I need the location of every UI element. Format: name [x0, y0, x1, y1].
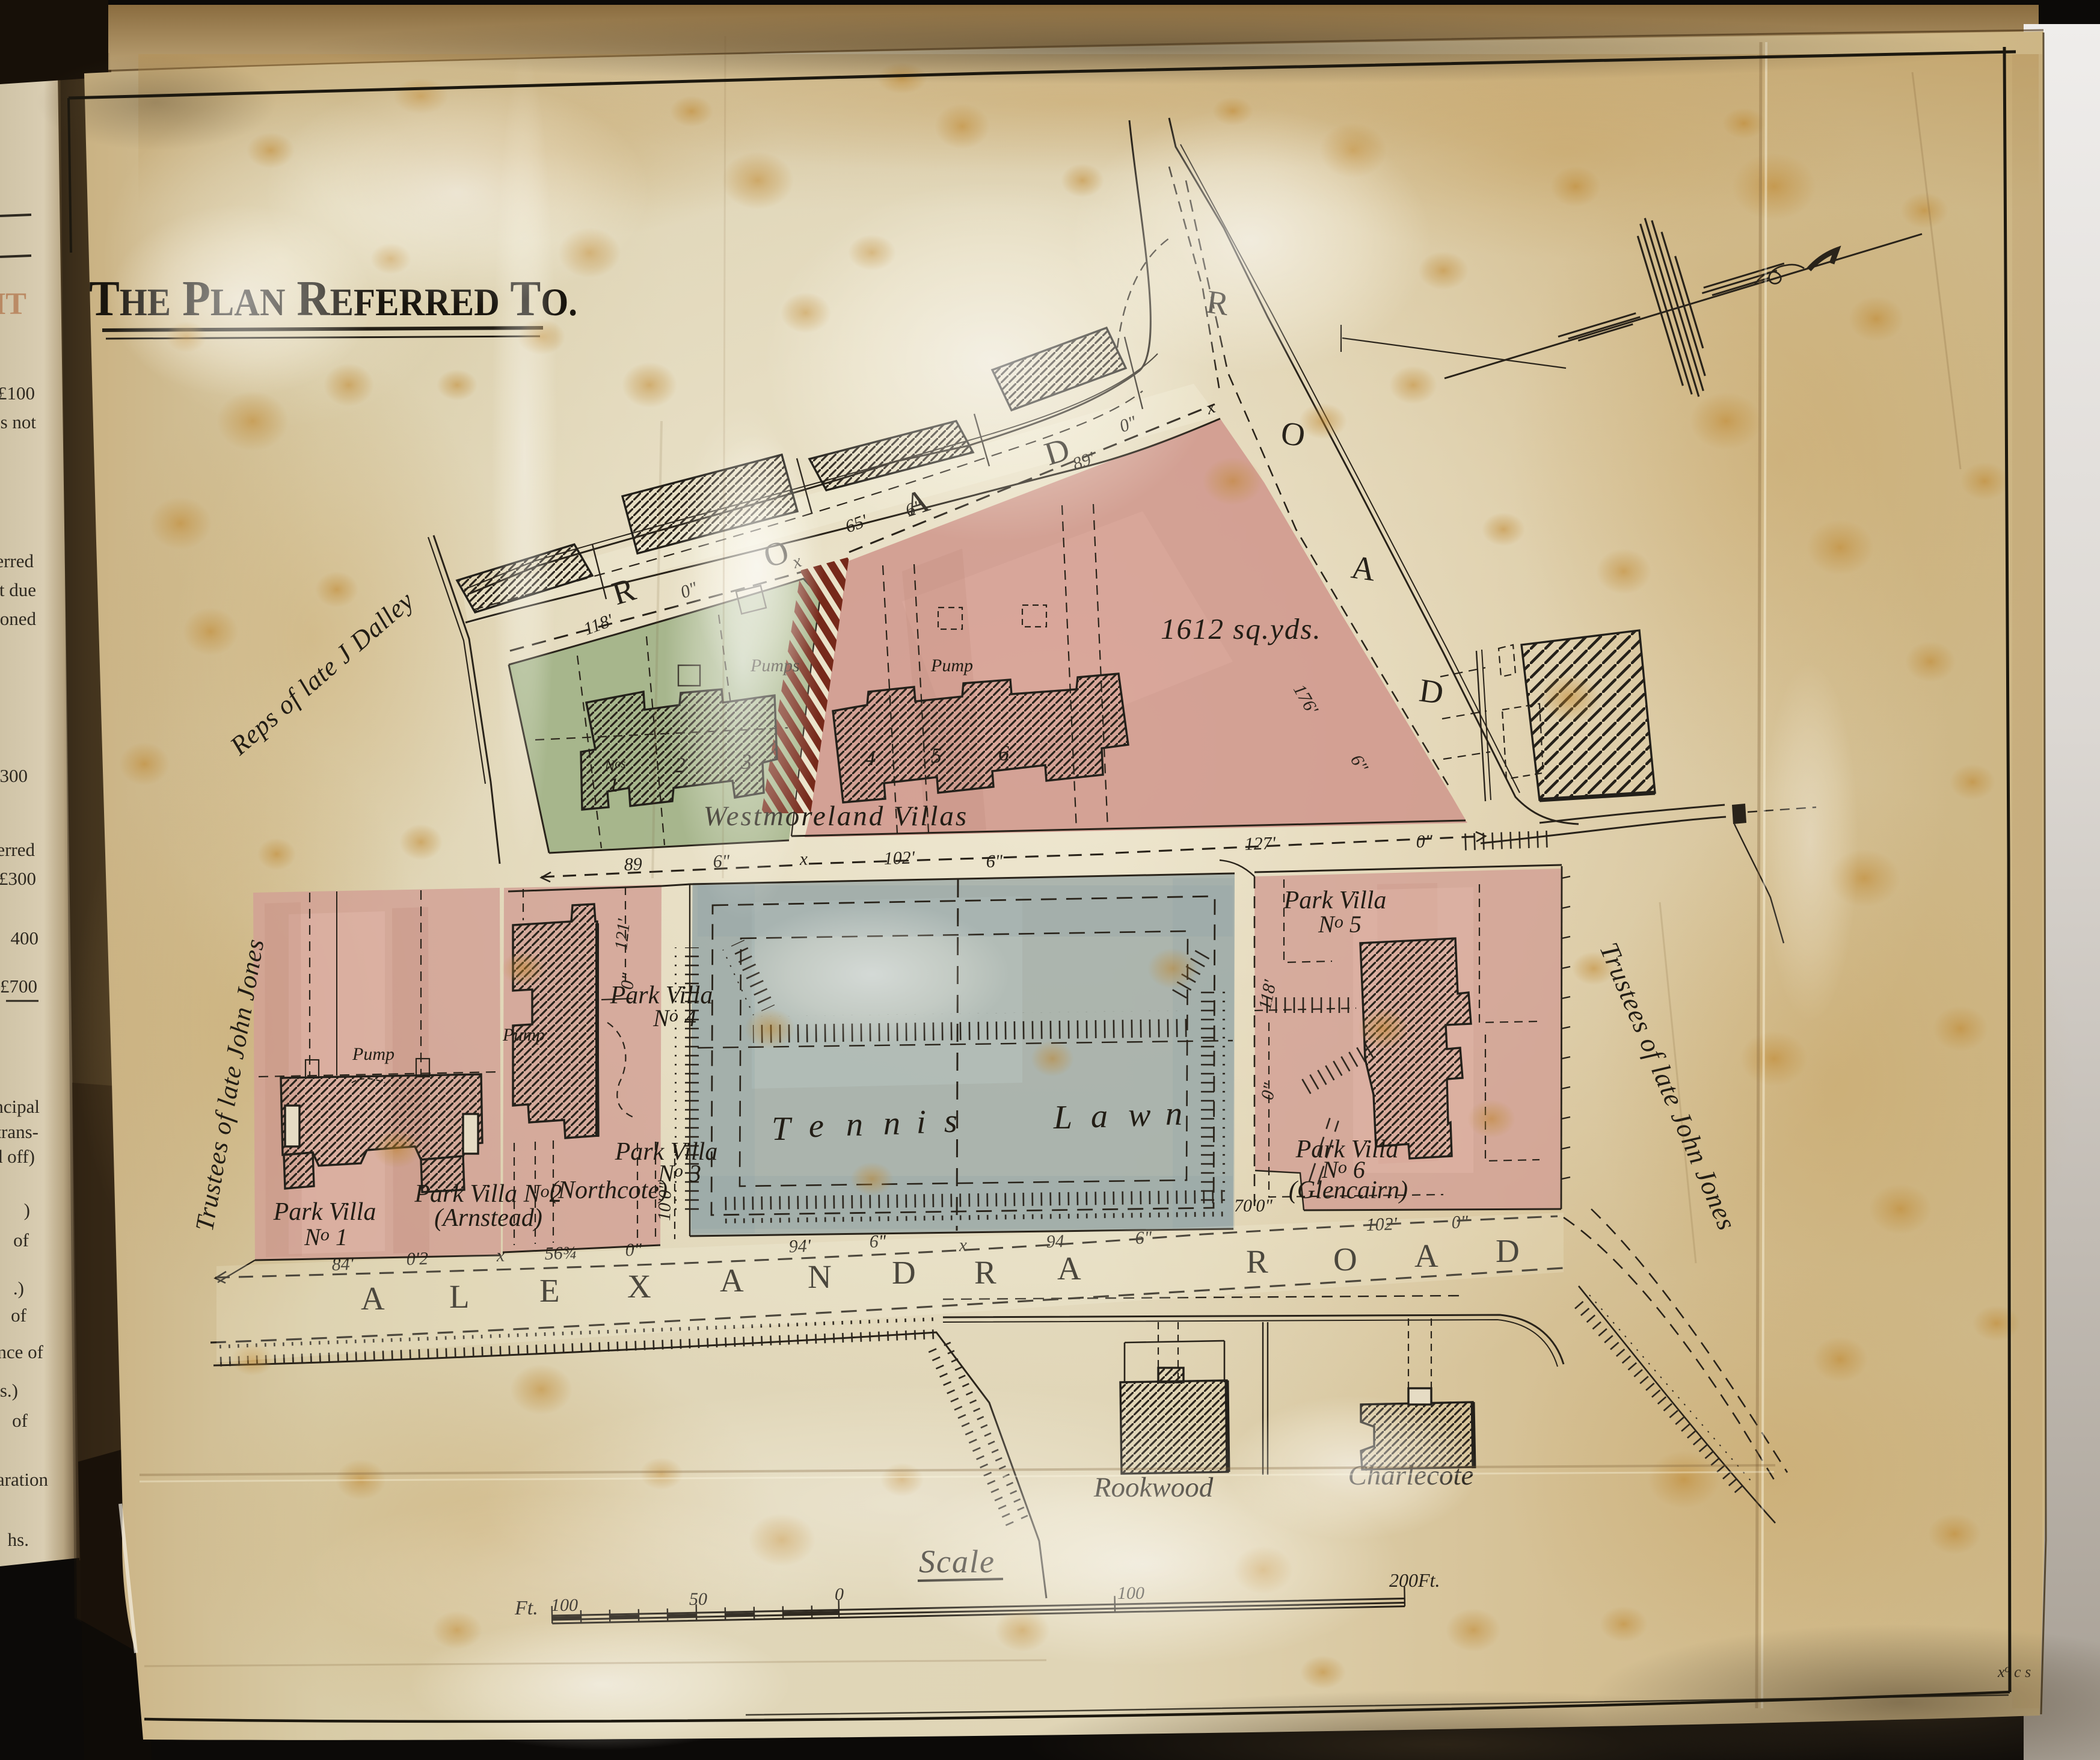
svg-text:of: of	[11, 1305, 27, 1326]
svg-text:sferred: sferred	[0, 839, 35, 860]
svg-text:(Northcote): (Northcote)	[550, 1177, 668, 1204]
svg-text:1: 1	[609, 774, 619, 796]
svg-text:Park Villa: Park Villa	[273, 1198, 376, 1226]
svg-text:nt due: nt due	[0, 579, 36, 600]
svg-text:1612 sq.yds.: 1612 sq.yds.	[1161, 612, 1322, 645]
svg-text:102': 102'	[883, 848, 915, 869]
svg-text:0": 0"	[1416, 831, 1433, 852]
svg-text:of: of	[12, 1410, 28, 1431]
svg-text:400: 400	[11, 928, 39, 949]
svg-text:n: n	[846, 1106, 863, 1143]
svg-text:): )	[24, 1199, 30, 1220]
svg-text:tioned: tioned	[0, 608, 36, 629]
svg-text:(Arnstead): (Arnstead)	[434, 1204, 542, 1232]
svg-text:i: i	[916, 1104, 926, 1141]
svg-text:HT: HT	[0, 287, 26, 321]
svg-text:D: D	[1417, 671, 1446, 711]
svg-text:s.): s.)	[0, 1380, 18, 1401]
svg-text:6": 6"	[986, 851, 1003, 872]
svg-text:£300: £300	[0, 868, 36, 889]
svg-text:hs.: hs.	[8, 1529, 29, 1550]
svg-text:£700: £700	[0, 976, 37, 997]
svg-text:4: 4	[865, 746, 876, 770]
svg-text:121': 121'	[611, 918, 634, 951]
svg-text:0": 0"	[617, 971, 639, 990]
svg-text:.): .)	[13, 1278, 24, 1299]
svg-text:w: w	[1128, 1097, 1150, 1134]
svg-text:e: e	[809, 1107, 824, 1145]
svg-text:nce of: nce of	[0, 1341, 44, 1362]
svg-text:0 trans-: 0 trans-	[0, 1121, 38, 1142]
svg-text:aration: aration	[0, 1469, 48, 1490]
svg-text:10'0": 10'0"	[654, 1182, 675, 1222]
svg-text:s not: s not	[1, 411, 37, 432]
svg-text:£100: £100	[0, 383, 35, 404]
svg-text:6: 6	[998, 741, 1009, 765]
svg-text:Pump: Pump	[502, 1025, 545, 1045]
svg-text:a: a	[1091, 1098, 1108, 1135]
svg-text:Pump: Pump	[930, 656, 973, 675]
svg-text:70'0": 70'0"	[1234, 1196, 1273, 1216]
svg-text:x: x	[799, 849, 808, 870]
svg-text:d off): d off)	[0, 1146, 35, 1167]
svg-text:n: n	[883, 1105, 900, 1142]
svg-text:L: L	[1053, 1099, 1072, 1136]
svg-text:£300: £300	[0, 765, 28, 786]
svg-text:Pump: Pump	[352, 1044, 395, 1064]
svg-text:ferred: ferred	[0, 550, 34, 571]
svg-text:T: T	[772, 1110, 793, 1148]
svg-text:Park Villa: Park Villa	[1283, 887, 1387, 914]
svg-text:(Glencairn): (Glencairn)	[1289, 1177, 1408, 1204]
svg-text:of: of	[13, 1229, 29, 1251]
svg-text:5: 5	[931, 743, 942, 768]
svg-text:n: n	[1165, 1095, 1182, 1133]
svg-text:89: 89	[624, 854, 642, 875]
svg-text:127': 127'	[1244, 833, 1276, 854]
svg-text:s: s	[944, 1103, 957, 1140]
svg-text:rincipal: rincipal	[0, 1096, 40, 1117]
